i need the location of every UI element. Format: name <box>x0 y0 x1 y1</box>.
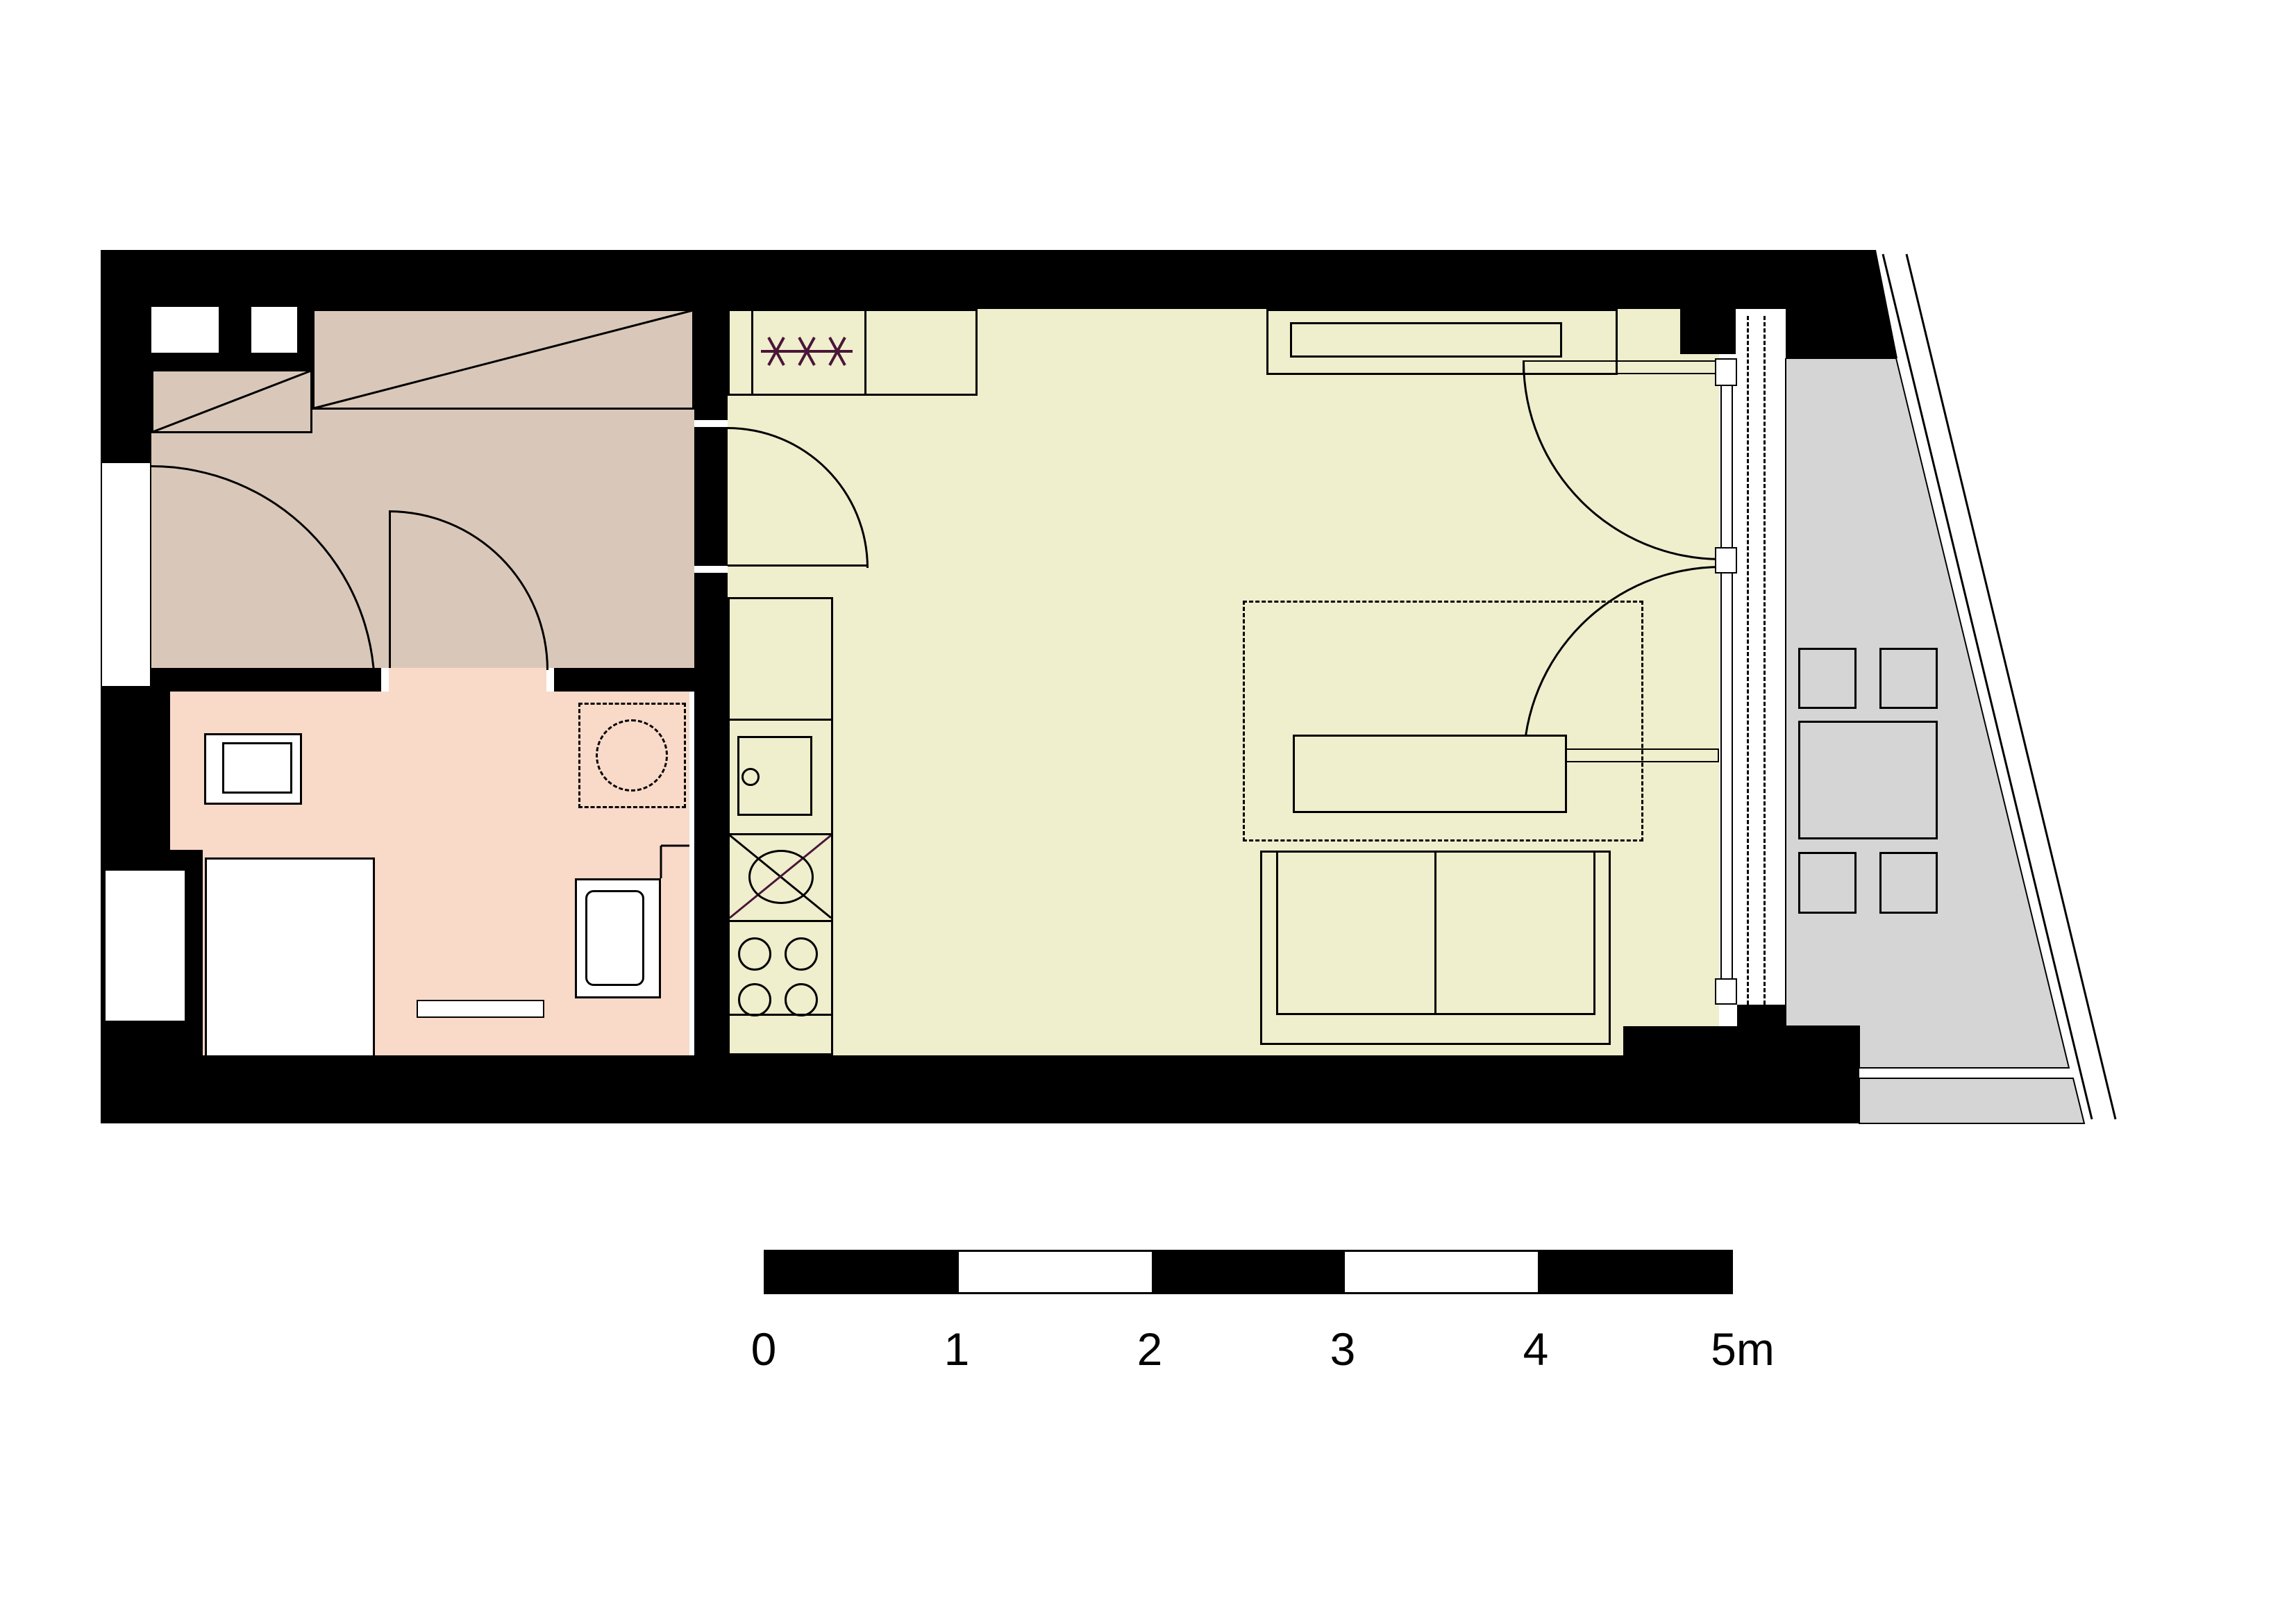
burner-3 <box>738 983 771 1016</box>
bathroom-door-jamb-left <box>381 668 389 692</box>
window-glazing-line-1 <box>1720 358 1722 1005</box>
wall-window-sill-end <box>1737 1005 1786 1026</box>
kitchen-upper-counter <box>728 309 978 396</box>
scale-segment-3 <box>1152 1252 1345 1292</box>
balcony-table <box>1798 721 1938 839</box>
bathroom-window <box>104 869 186 1022</box>
window-glazing-line-2 <box>1732 358 1733 1005</box>
scale-segment-5 <box>1538 1252 1731 1292</box>
bathroom-door-jamb-right <box>546 668 554 692</box>
washbasin-bowl <box>222 742 292 794</box>
sofa-seat-divider <box>1434 851 1436 1015</box>
scale-segment-2 <box>959 1252 1152 1292</box>
kitchen-door-jamb-bottom <box>694 566 728 573</box>
washing-machine-drum-dashed <box>596 719 668 792</box>
bathroom-radiator <box>417 1000 544 1018</box>
hall-wardrobe-large <box>312 309 694 410</box>
window-mullion-bottom <box>1715 978 1737 1005</box>
neighbor-balcony-floor <box>1859 1078 2084 1123</box>
upper-counter-divider-1 <box>751 309 753 396</box>
bathroom-door-threshold <box>389 668 546 692</box>
overhead-slab-dashed-line-2 <box>1763 316 1766 1005</box>
entrance-door-opening <box>101 462 151 687</box>
table <box>1293 735 1567 813</box>
bathroom-door-leaf <box>389 510 391 668</box>
scale-segment-1 <box>766 1252 959 1292</box>
window-sill-notch <box>1719 1005 1737 1026</box>
window-mullion-middle <box>1715 547 1737 574</box>
balcony-chair-1 <box>1798 648 1857 709</box>
hall-wardrobe-small <box>151 369 312 433</box>
side-counter-divider-3 <box>728 920 833 922</box>
window-head-notch <box>1736 309 1786 358</box>
toilet-bowl <box>585 890 644 986</box>
overhead-slab-dashed-line-1 <box>1747 316 1749 1005</box>
balcony-chair-4 <box>1879 852 1938 914</box>
side-counter-divider-1 <box>728 719 833 721</box>
sink-drain-icon <box>741 768 760 786</box>
scale-bar <box>764 1250 1733 1294</box>
wall-bottom-right-jog <box>1623 1026 1859 1055</box>
kitchen-door-jamb-top <box>694 420 728 427</box>
balcony-chair-2 <box>1879 648 1938 709</box>
wall-top <box>101 250 1722 309</box>
plan-linework-layer <box>0 0 2296 1624</box>
living-wardrobe-inner <box>1290 322 1562 358</box>
side-counter-divider-2 <box>728 833 833 835</box>
shaft-niche-1 <box>151 307 219 353</box>
upper-counter-divider-2 <box>864 309 866 396</box>
side-counter-divider-4 <box>728 1014 833 1016</box>
shower-tray <box>205 857 375 1057</box>
scale-segment-4 <box>1345 1252 1538 1292</box>
kitchen-door-leaf <box>728 564 866 567</box>
balcony-chair-3 <box>1798 852 1857 914</box>
window-mullion-top <box>1715 358 1737 386</box>
wall-bottom <box>101 1055 1859 1123</box>
burner-1 <box>738 937 771 971</box>
floor-plan-canvas: 0 1 2 3 4 5m <box>0 0 2296 1624</box>
burner-2 <box>785 937 818 971</box>
balcony-floor <box>1786 358 2069 1068</box>
kitchen-sink-bowl <box>748 850 814 904</box>
shaft-niche-2 <box>251 307 297 353</box>
burner-4 <box>785 983 818 1016</box>
